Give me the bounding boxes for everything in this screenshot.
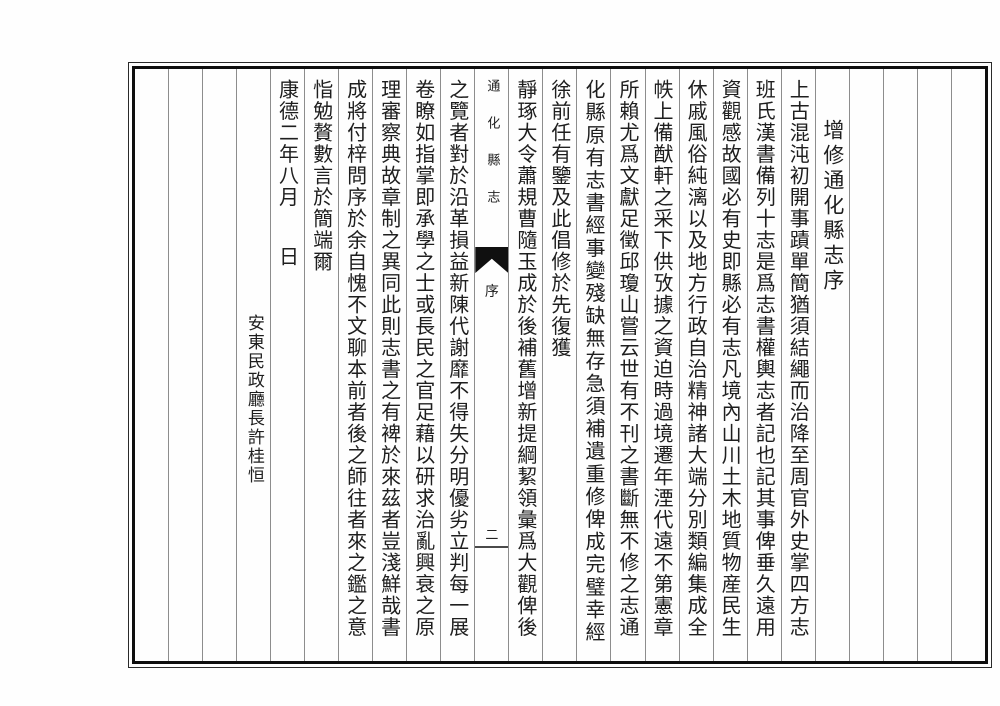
column-text: 所賴尤爲文獻足徵邱瓊山嘗云世有不刊之書斷無不修之志通	[617, 79, 639, 661]
body-column: 恉勉贅數言於簡端爾	[305, 69, 339, 661]
title-column: 增修通化縣志序	[816, 69, 850, 661]
column-text: 之覽者對於沿革損益新陳代謝靡不得失分明優劣立判每一展	[447, 79, 469, 661]
body-column: 化縣原有志書經事變殘缺無存急須補遺重修俾成完璧幸經	[577, 69, 611, 661]
date-era-text: 康德二年八月	[276, 79, 300, 208]
body-column: 卷瞭如指掌即承學之士或長民之官足藉以研求治亂興衰之原	[407, 69, 441, 661]
body-column: 上古混沌初開事蹟單簡猶須結繩而治降至周官外史掌四方志	[782, 69, 816, 661]
body-column: 靜琢大令蕭規曹隨玉成於後補舊增新提綱絜領彙爲大觀俾後	[509, 69, 543, 661]
banxin-divider	[475, 546, 508, 548]
empty-column	[952, 69, 985, 661]
column-text: 靜琢大令蕭規曹隨玉成於後補舊增新提綱絜領彙爲大觀俾後	[515, 79, 537, 661]
banxin-column: 通化縣志序二	[475, 69, 509, 661]
empty-column	[918, 69, 952, 661]
body-column: 休戚風俗純漓以及地方行政自治精神諸大端分別類編集成全	[680, 69, 714, 661]
empty-column	[135, 69, 169, 661]
page-border-outer: 增修通化縣志序上古混沌初開事蹟單簡猶須結繩而治降至周官外史掌四方志班氏漢書備列十…	[128, 62, 992, 668]
page-number: 二	[485, 529, 498, 542]
empty-column	[850, 69, 884, 661]
body-column: 所賴尤爲文獻足徵邱瓊山嘗云世有不刊之書斷無不修之志通	[611, 69, 645, 661]
date-day-label: 日	[276, 246, 300, 268]
column-text: 增修通化縣志序	[821, 119, 844, 661]
column-text: 恉勉贅數言於簡端爾	[311, 79, 333, 661]
body-column: 班氏漢書備列十志是爲志書權輿志者記也記其事俾垂久遠用	[748, 69, 782, 661]
banxin-book-title: 通化縣志	[485, 79, 498, 227]
banxin: 通化縣志序二	[475, 69, 508, 661]
empty-column	[884, 69, 918, 661]
column-text: 休戚風俗純漓以及地方行政自治精神諸大端分別類編集成全	[685, 79, 707, 661]
date-column: 康德二年八月日	[271, 69, 305, 661]
body-column: 帙上備猷軒之采下供攷據之資迫時過境遷年湮代遠不第憲章	[646, 69, 680, 661]
column-text: 徐前任有鑒及此倡修於先復獲	[549, 79, 571, 661]
column-text: 上古混沌初開事蹟單簡猶須結繩而治降至周官外史掌四方志	[787, 79, 809, 661]
page-border-inner: 增修通化縣志序上古混沌初開事蹟單簡猶須結繩而治降至周官外史掌四方志班氏漢書備列十…	[132, 66, 988, 664]
banxin-section-label: 序	[485, 285, 499, 299]
column-text: 帙上備猷軒之采下供攷據之資迫時過境遷年湮代遠不第憲章	[651, 79, 673, 661]
fishtail-mark-icon	[475, 247, 508, 273]
body-column: 資觀感故國必有史即縣必有志凡境內山川土木地質物産民生	[714, 69, 748, 661]
column-text: 化縣原有志書經事變殘缺無存急須補遺重修俾成完璧幸經	[583, 79, 605, 661]
text-columns: 增修通化縣志序上古混沌初開事蹟單簡猶須結繩而治降至周官外史掌四方志班氏漢書備列十…	[135, 69, 985, 661]
body-column: 徐前任有鑒及此倡修於先復獲	[543, 69, 577, 661]
signature-column: 安東民政廳長許桂恒	[237, 69, 271, 661]
body-column: 之覽者對於沿革損益新陳代謝靡不得失分明優劣立判每一展	[441, 69, 475, 661]
column-text: 成將付梓問序於余自愧不文聊本前者後之師往者來之鑑之意	[345, 79, 367, 661]
column-text: 班氏漢書備列十志是爲志書權輿志者記也記其事俾垂久遠用	[753, 79, 775, 661]
date-text: 康德二年八月日	[277, 79, 299, 661]
body-column: 理審察典故章制之異同此則志書之有裨於來茲者豈淺鮮哉書	[373, 69, 407, 661]
column-text: 卷瞭如指掌即承學之士或長民之官足藉以研求治亂興衰之原	[413, 79, 435, 661]
column-text: 安東民政廳長許桂恒	[244, 314, 263, 661]
body-column: 成將付梓問序於余自愧不文聊本前者後之師往者來之鑑之意	[339, 69, 373, 661]
empty-column	[169, 69, 203, 661]
column-text: 資觀感故國必有史即縣必有志凡境內山川土木地質物産民生	[719, 79, 741, 661]
column-text: 理審察典故章制之異同此則志書之有裨於來茲者豈淺鮮哉書	[379, 79, 401, 661]
empty-column	[203, 69, 237, 661]
scanned-book-page: 增修通化縣志序上古混沌初開事蹟單簡猶須結繩而治降至周官外史掌四方志班氏漢書備列十…	[0, 0, 1000, 706]
